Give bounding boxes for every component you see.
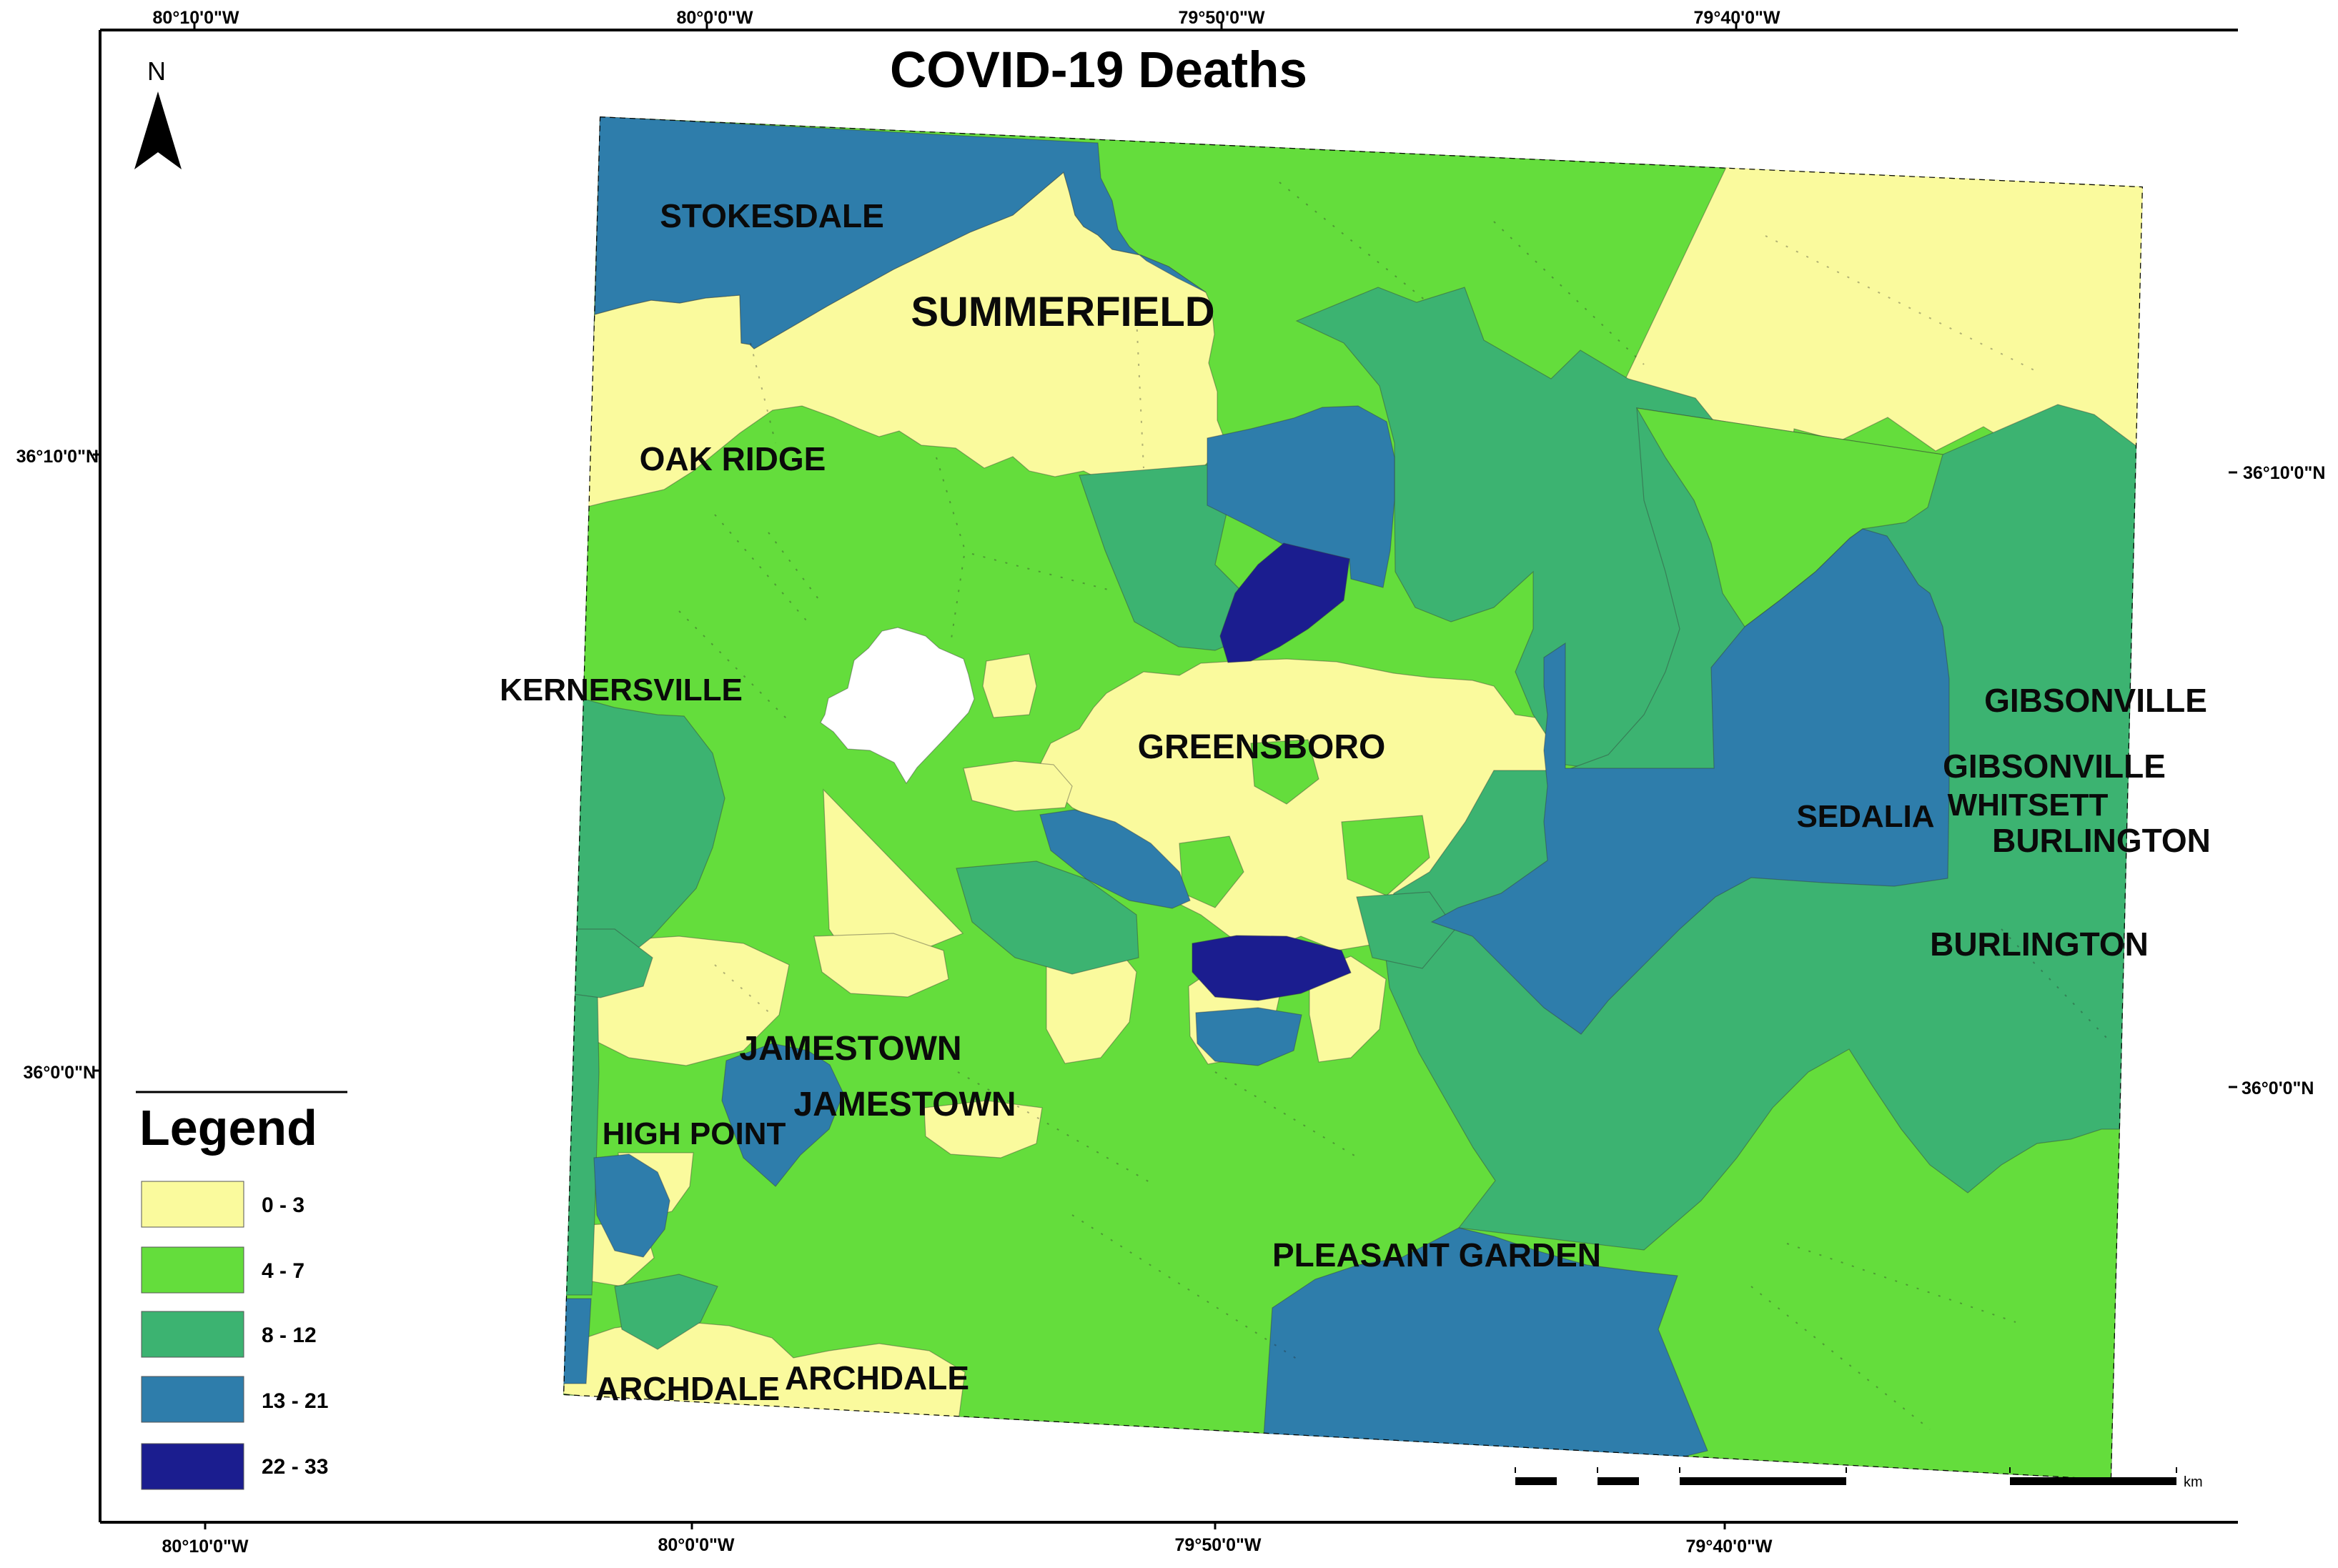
svg-text:22 - 33: 22 - 33 — [262, 1455, 328, 1479]
svg-text:36°0'0"N: 36°0'0"N — [2242, 1078, 2314, 1098]
svg-text:WHITSETT: WHITSETT — [1948, 788, 2109, 823]
svg-text:0 - 3: 0 - 3 — [262, 1194, 304, 1217]
svg-text:GIBSONVILLE: GIBSONVILLE — [1984, 682, 2207, 719]
svg-text:8 - 12: 8 - 12 — [262, 1324, 317, 1347]
svg-text:13 - 21: 13 - 21 — [262, 1389, 328, 1413]
svg-text:SUMMERFIELD: SUMMERFIELD — [911, 289, 1214, 335]
svg-text:BURLINGTON: BURLINGTON — [1930, 926, 2149, 963]
svg-text:JAMESTOWN: JAMESTOWN — [739, 1030, 961, 1068]
svg-text:PLEASANT GARDEN: PLEASANT GARDEN — [1272, 1236, 1601, 1274]
svg-text:79°50'0"W: 79°50'0"W — [1179, 8, 1265, 28]
svg-text:N: N — [147, 56, 166, 86]
svg-text:km: km — [2184, 1474, 2203, 1490]
svg-text:36°10'0"N: 36°10'0"N — [2243, 463, 2325, 483]
svg-text:JAMESTOWN: JAMESTOWN — [793, 1086, 1016, 1123]
svg-text:ARCHDALE: ARCHDALE — [595, 1370, 780, 1407]
svg-text:4 - 7: 4 - 7 — [262, 1259, 304, 1283]
svg-text:ARCHDALE: ARCHDALE — [785, 1359, 969, 1396]
svg-text:36°10'0"N: 36°10'0"N — [16, 447, 99, 467]
svg-text:80°10'0"W: 80°10'0"W — [162, 1537, 249, 1557]
svg-text:80°0'0"W: 80°0'0"W — [676, 8, 753, 28]
svg-text:OAK RIDGE: OAK RIDGE — [640, 440, 826, 477]
svg-text:STOKESDALE: STOKESDALE — [660, 197, 884, 234]
svg-text:36°0'0"N: 36°0'0"N — [24, 1063, 96, 1083]
svg-text:KERNERSVILLE: KERNERSVILLE — [500, 673, 743, 708]
svg-text:SEDALIA: SEDALIA — [1796, 799, 1934, 834]
svg-text:79°40'0"W: 79°40'0"W — [1694, 8, 1780, 28]
svg-text:COVID-19 Deaths: COVID-19 Deaths — [890, 42, 1307, 99]
svg-text:80°0'0"W: 80°0'0"W — [658, 1535, 734, 1555]
svg-text:Legend: Legend — [139, 1100, 317, 1156]
svg-text:BURLINGTON: BURLINGTON — [1992, 822, 2211, 859]
svg-text:GREENSBORO: GREENSBORO — [1138, 728, 1386, 766]
svg-text:GIBSONVILLE: GIBSONVILLE — [1943, 748, 2166, 785]
svg-text:80°10'0"W: 80°10'0"W — [153, 8, 239, 28]
svg-text:79°50'0"W: 79°50'0"W — [1175, 1535, 1262, 1555]
svg-text:HIGH POINT: HIGH POINT — [603, 1116, 786, 1151]
svg-text:79°40'0"W: 79°40'0"W — [1686, 1537, 1773, 1557]
